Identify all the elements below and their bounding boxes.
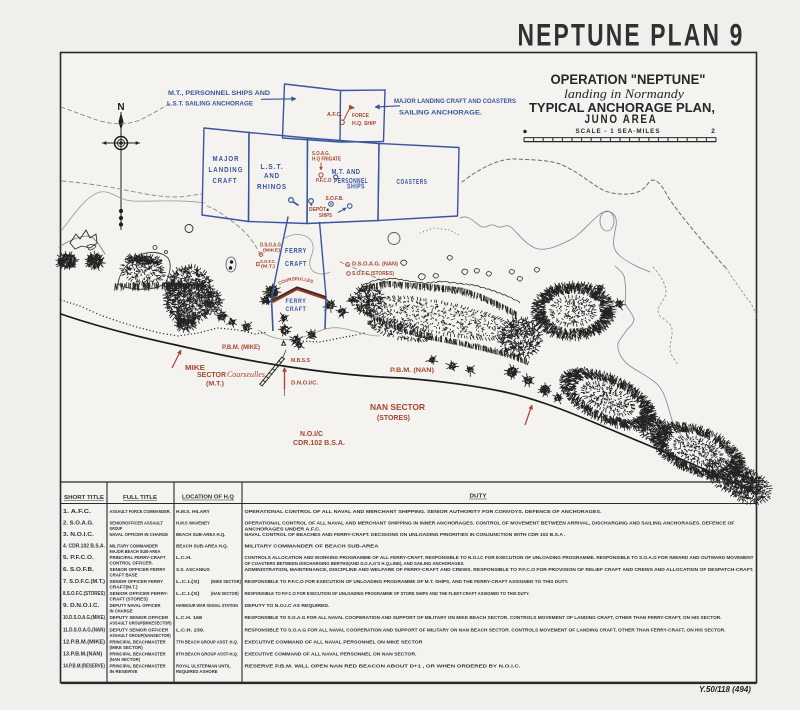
svg-text:L.C.H. 239.: L.C.H. 239. — [176, 628, 205, 633]
svg-text:PRINCIPAL BEACHMASTER: PRINCIPAL BEACHMASTER — [110, 640, 167, 645]
svg-text:L.S.T.: L.S.T. — [261, 162, 284, 171]
svg-text:EXECUTIVE COMMAND OF ALL N: EXECUTIVE COMMAND OF ALL NAVAL PERSONNEL… — [245, 652, 417, 657]
svg-text:(NAN SECTOR): (NAN SECTOR) — [211, 591, 239, 596]
svg-text:OF COASTERS BETWEEN DISCHARGIN: OF COASTERS BETWEEN DISCHARGING BERTHS(A… — [245, 561, 465, 566]
svg-text:IN CHARGE: IN CHARGE — [110, 609, 133, 614]
svg-text:SENIOROFFICER ASSAULT: SENIOROFFICER ASSAULT — [110, 521, 164, 526]
svg-text:MILITARY COMMANDER: MILITARY COMMANDER — [110, 544, 159, 549]
svg-text:12.P.B.M.(MIKE): 12.P.B.M.(MIKE) — [63, 640, 105, 646]
svg-text:14.P.B.M.(RESERVE): 14.P.B.M.(RESERVE) — [63, 664, 105, 670]
svg-text:(MIKE SECTOR): (MIKE SECTOR) — [211, 579, 241, 584]
svg-text:ASSAULT GROUP(NANSECTOR): ASSAULT GROUP(NANSECTOR) — [110, 633, 172, 638]
svg-text:M.T., PERSONNEL SHIPS AND: M.T., PERSONNEL SHIPS AND — [168, 90, 270, 97]
svg-text:SHIPS: SHIPS — [319, 213, 332, 219]
svg-text:(MIKE): (MIKE) — [263, 248, 281, 253]
svg-text:SENIOR OFFICER FERRY: SENIOR OFFICER FERRY — [110, 567, 166, 572]
svg-text:PRINCIPAL BEACHMASTER: PRINCIPAL BEACHMASTER — [110, 664, 167, 669]
svg-text:NEPTUNE PLAN 9: NEPTUNE PLAN 9 — [518, 17, 745, 53]
svg-text:5. P.F.C.O.: 5. P.F.C.O. — [63, 555, 94, 561]
svg-text:D.N.O.I/C.: D.N.O.I/C. — [291, 381, 318, 387]
svg-text:CONTROL OFFICER.: CONTROL OFFICER. — [110, 561, 153, 566]
svg-text:8TH BEACH GROUP ASST-H.Q.: 8TH BEACH GROUP ASST-H.Q. — [176, 652, 238, 657]
svg-text:MAJOR BEACH SUB-AREA: MAJOR BEACH SUB-AREA — [110, 549, 162, 554]
svg-text:L.C.H.: L.C.H. — [176, 555, 192, 560]
svg-text:SECTOR: SECTOR — [197, 370, 227, 379]
svg-text:FORCE: FORCE — [352, 113, 369, 119]
svg-text:RESPONSIBLE TO S.O.A.G FOR A: RESPONSIBLE TO S.O.A.G FOR ALL NAVAL COO… — [245, 628, 726, 633]
svg-text:MAJOR: MAJOR — [213, 154, 240, 163]
svg-text:M.B.S.S: M.B.S.S — [291, 358, 310, 364]
svg-text:CRAFT (STORES): CRAFT (STORES) — [110, 597, 149, 602]
svg-text:L.C.I.(S): L.C.I.(S) — [176, 579, 200, 584]
svg-text:IN RESERVE: IN RESERVE — [110, 669, 138, 674]
svg-text:2: 2 — [711, 128, 715, 135]
svg-text:SAILING ANCHORAGE.: SAILING ANCHORAGE. — [399, 110, 482, 117]
svg-text:SCALE - 1 SEA·MILES: SCALE - 1 SEA·MILES — [576, 128, 661, 135]
svg-text:(STORES): (STORES) — [377, 413, 410, 422]
svg-text:JUNO AREA: JUNO AREA — [585, 114, 658, 126]
svg-text:P.B.M. (NAN): P.B.M. (NAN) — [390, 367, 434, 374]
svg-text:RESERVE P.B.M. WILL OPEN NA: RESERVE P.B.M. WILL OPEN NAN RED BEACON … — [245, 664, 521, 669]
svg-text:NAVAL CONTROL OF BEACHES A: NAVAL CONTROL OF BEACHES AND FERRY-CRAFT… — [245, 532, 566, 537]
svg-text:NAN SECTOR: NAN SECTOR — [370, 402, 425, 412]
svg-text:OPERATIONAL CONTROL OF ALL NAV: OPERATIONAL CONTROL OF ALL NAVAL AND MER… — [245, 509, 602, 514]
svg-text:EXECUTIVE COMMAND OF ALL N: EXECUTIVE COMMAND OF ALL NAVAL PERSONNEL… — [245, 640, 424, 645]
svg-text:COASTERS: COASTERS — [397, 177, 428, 186]
svg-text:ASSAULT GROUP(MIKESECTOR): ASSAULT GROUP(MIKESECTOR) — [110, 621, 172, 626]
svg-text:6. S.O.F.B.: 6. S.O.F.B. — [63, 567, 94, 573]
svg-text:S.O.F.C.(STORES): S.O.F.C.(STORES) — [352, 271, 394, 277]
svg-text:L.C.H. 168: L.C.H. 168 — [176, 615, 203, 620]
svg-text:FULL TITLE: FULL TITLE — [123, 495, 157, 501]
svg-text:P.B.M. (MIKE): P.B.M. (MIKE) — [222, 344, 260, 351]
svg-text:OPERATIONAL CONTROL OF ALL NAV: OPERATIONAL CONTROL OF ALL NAVAL AND MER… — [245, 521, 735, 526]
svg-text:CONTROLS ALLOCATION AND WORKIN: CONTROLS ALLOCATION AND WORKING PROGRAMM… — [245, 555, 754, 560]
svg-text:CRAFT(M.T.): CRAFT(M.T.) — [110, 585, 139, 590]
svg-text:RHINOS: RHINOS — [257, 182, 287, 191]
svg-text:Courseulles: Courseulles — [227, 370, 265, 379]
svg-text:N.O.I/C: N.O.I/C — [300, 431, 323, 438]
svg-text:AND: AND — [264, 173, 280, 180]
svg-text:MILITARY COMMANDER OF BEACH: MILITARY COMMANDER OF BEACH SUB-AREA — [245, 544, 380, 549]
svg-text:landing in Normandy: landing in Normandy — [564, 86, 684, 101]
svg-text:Y.50/118 (494): Y.50/118 (494) — [699, 684, 751, 694]
svg-text:H.Q. SHIP: H.Q. SHIP — [352, 121, 376, 127]
svg-text:GROUP: GROUP — [110, 526, 123, 531]
svg-text:OPERATION "NEPTUNE": OPERATION "NEPTUNE" — [551, 72, 706, 87]
svg-text:FERRY: FERRY — [285, 248, 307, 255]
svg-text:7. S.O.F.C.(M.T.): 7. S.O.F.C.(M.T.) — [63, 579, 105, 585]
svg-text:DEPUTY SENIOR OFFICER: DEPUTY SENIOR OFFICER — [110, 628, 170, 633]
svg-text:P.F.C.O: P.F.C.O — [316, 178, 332, 184]
svg-text:DEPÔT: DEPÔT — [309, 205, 327, 213]
svg-text:ANCHORAGES UNDER A.F.C.: ANCHORAGES UNDER A.F.C. — [245, 527, 321, 532]
svg-text:HARBOUR WAR SIGNAL STATION: HARBOUR WAR SIGNAL STATION — [176, 603, 239, 608]
svg-text:PRINCIPAL FERRY-CRAFT: PRINCIPAL FERRY-CRAFT — [110, 555, 166, 560]
svg-text:PRINCIPAL BEACHMASTER: PRINCIPAL BEACHMASTER — [110, 652, 167, 657]
svg-text:8.S.O.F.C.(STORES): 8.S.O.F.C.(STORES) — [63, 591, 105, 597]
svg-text:H.M.S. HILARY: H.M.S. HILARY — [176, 509, 210, 514]
svg-text:ADMINISTRATION, MAINTENANCE, D: ADMINISTRATION, MAINTENANCE, DISCIPLINE … — [245, 567, 754, 572]
svg-text:7TH BEACH GROUP ASST. H.Q.: 7TH BEACH GROUP ASST. H.Q. — [176, 640, 238, 645]
svg-text:CRAFT: CRAFT — [213, 176, 238, 185]
svg-text:N: N — [117, 102, 124, 113]
svg-text:S.S. ASCANIUS: S.S. ASCANIUS — [176, 567, 210, 572]
svg-text:11.D.S.O.A.G.(NAN): 11.D.S.O.A.G.(NAN) — [63, 628, 105, 634]
svg-text:CRAFT BASE: CRAFT BASE — [110, 573, 138, 578]
svg-text:BEACH SUB-AREA H.Q.: BEACH SUB-AREA H.Q. — [176, 532, 225, 537]
svg-text:(NAN SECTOR): (NAN SECTOR) — [110, 657, 141, 662]
svg-text:ASSAULT FORCE COMMANDER.: ASSAULT FORCE COMMANDER. — [110, 509, 171, 514]
svg-text:S.O.F.B.: S.O.F.B. — [326, 196, 345, 202]
svg-text:13.P.B.M.(NAN): 13.P.B.M.(NAN) — [63, 652, 102, 658]
svg-text:H.M.S WAVENEY: H.M.S WAVENEY — [176, 521, 210, 526]
svg-text:9. D.N.O.I.C.: 9. D.N.O.I.C. — [63, 603, 100, 609]
svg-text:MAJOR LANDING CRAFT AND COASTE: MAJOR LANDING CRAFT AND COASTERS — [394, 98, 516, 105]
svg-text:H.Q FRIGATE: H.Q FRIGATE — [312, 157, 342, 163]
svg-text:TYPICAL ANCHORAGE PLAN,: TYPICAL ANCHORAGE PLAN, — [529, 101, 715, 115]
svg-text:L.S.T. SAILING ANCHORAGE: L.S.T. SAILING ANCHORAGE — [167, 101, 253, 108]
svg-text:CRAFT: CRAFT — [285, 261, 307, 268]
svg-text:FERRY: FERRY — [286, 298, 307, 305]
svg-text:NAVAL OFFICER IN CHARGE: NAVAL OFFICER IN CHARGE — [110, 532, 169, 537]
svg-text:LANDING: LANDING — [209, 165, 244, 174]
svg-text:10.D.S.O.A.G.(MIKE): 10.D.S.O.A.G.(MIKE) — [63, 615, 105, 621]
svg-text:SENIOR OFFICER FERRY-: SENIOR OFFICER FERRY- — [110, 591, 169, 596]
svg-text:(M.T.): (M.T.) — [261, 264, 275, 270]
svg-text:ROYAL ULSTERMAN UNTIL: ROYAL ULSTERMAN UNTIL — [176, 664, 231, 669]
svg-text:A.F.C.: A.F.C. — [327, 112, 342, 118]
svg-text:RESPONSIBLE TO S.O.A.G FOR A: RESPONSIBLE TO S.O.A.G FOR ALL NAVAL COO… — [245, 615, 722, 620]
svg-text:(MIKE SECTOR): (MIKE SECTOR) — [110, 645, 144, 650]
svg-text:DEPUTY SENIOR OFFICER: DEPUTY SENIOR OFFICER — [110, 615, 170, 620]
svg-text:RESPONSIBLE TO P.F.C.O FOR E: RESPONSIBLE TO P.F.C.O FOR EXECUTION OF … — [245, 579, 569, 584]
svg-text:2. S.O.A.G.: 2. S.O.A.G. — [63, 521, 94, 527]
svg-text:4. CDR.102 B.S.A.: 4. CDR.102 B.S.A. — [63, 544, 105, 550]
svg-text:DUTY: DUTY — [470, 494, 487, 500]
svg-text:SHORT TITLE: SHORT TITLE — [64, 495, 104, 501]
svg-text:1. A.F.C.: 1. A.F.C. — [63, 509, 92, 515]
svg-text:DEPUTY TO N.O.I.C AS REQUI: DEPUTY TO N.O.I.C AS REQUIRED. — [245, 603, 330, 608]
svg-text:BEACH SUB-AREA H.Q.: BEACH SUB-AREA H.Q. — [176, 544, 228, 549]
svg-text:LOCATION OF H.Q: LOCATION OF H.Q — [182, 495, 235, 501]
svg-text:REQUIRED ASHORE: REQUIRED ASHORE — [176, 669, 218, 674]
svg-text:CRAFT: CRAFT — [286, 306, 307, 313]
svg-text:3. N.O.I.C.: 3. N.O.I.C. — [63, 532, 94, 538]
svg-text:RESPONSIBLE TO P.F.C.O FOR: RESPONSIBLE TO P.F.C.O FOR EXECUTION OF … — [245, 591, 530, 596]
svg-text:DEPUTY NAVAL OFFICER: DEPUTY NAVAL OFFICER — [110, 603, 162, 608]
svg-text:D.S.O.A.G. (NAN): D.S.O.A.G. (NAN) — [352, 262, 398, 268]
svg-text:L.C.I.(S): L.C.I.(S) — [176, 591, 200, 596]
svg-text:(M.T.): (M.T.) — [206, 381, 224, 388]
svg-text:SHIPS: SHIPS — [347, 184, 365, 191]
svg-text:CDR.102 B.S.A.: CDR.102 B.S.A. — [293, 440, 345, 447]
svg-text:SENIOR OFFICER FERRY: SENIOR OFFICER FERRY — [110, 579, 164, 584]
